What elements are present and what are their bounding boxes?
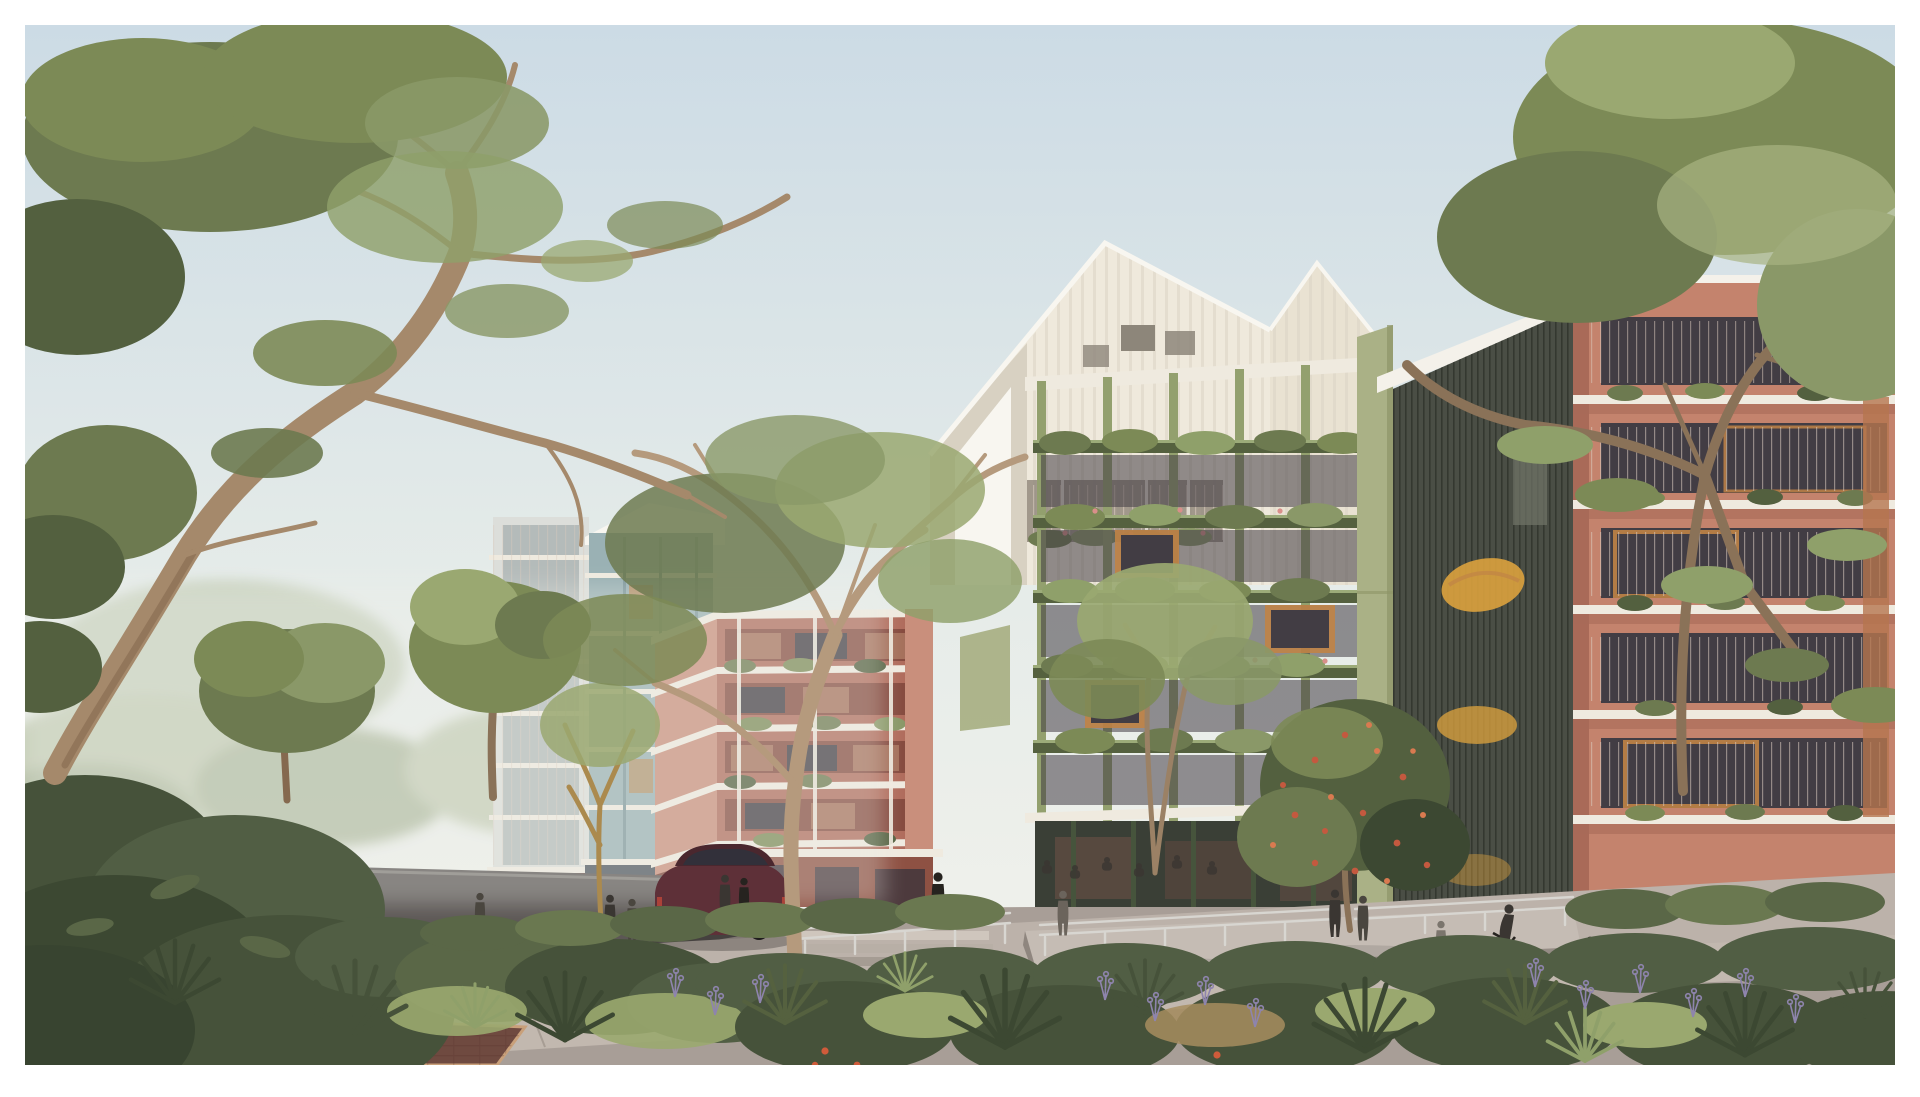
architectural-render [25,25,1895,1065]
rendered-page [0,0,1920,1097]
